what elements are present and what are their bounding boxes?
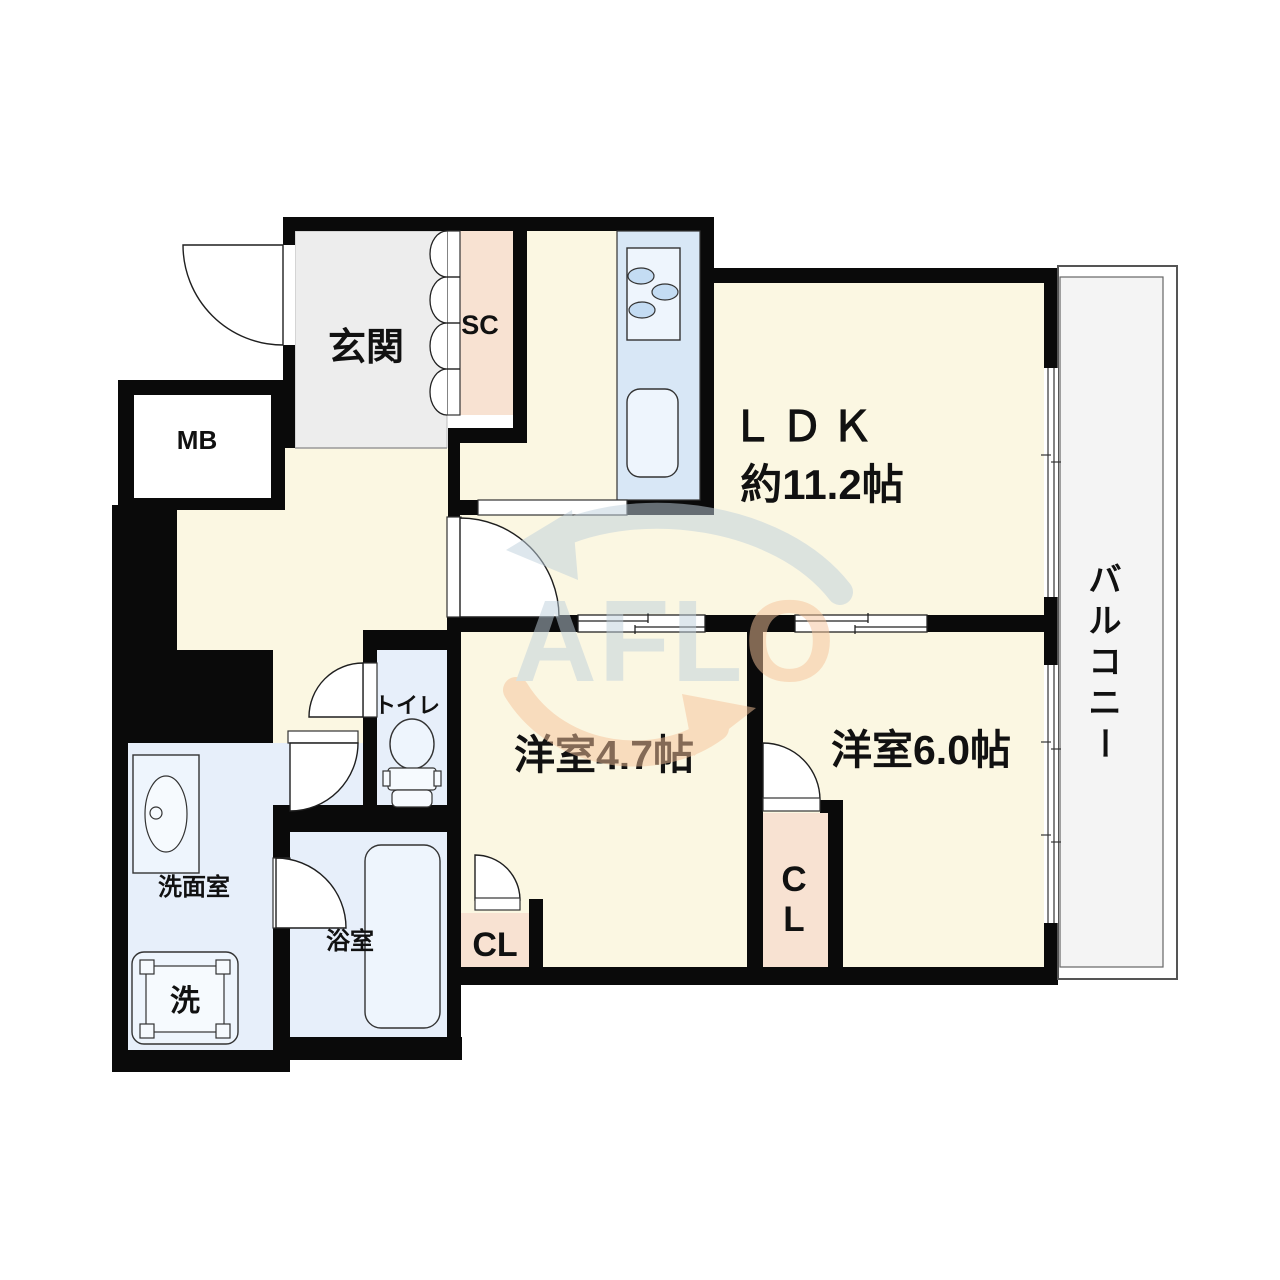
bedroom-60-window: [1041, 665, 1061, 923]
balcony-label: バ ル コ ニ ー: [1086, 561, 1123, 760]
kitchen-sink: [627, 389, 678, 477]
washing-machine-label: 洗: [170, 985, 200, 1018]
genkan-label: 玄関: [328, 327, 404, 369]
watermark-text: AFLO: [513, 576, 837, 706]
ldk-name-label: ＬＤＫ: [731, 403, 881, 450]
svg-text:ー: ー: [1086, 727, 1123, 760]
vanity-faucet: [150, 807, 162, 819]
kitchen-vestibule-floor: [460, 443, 527, 501]
shoe-closet-label: SC: [461, 310, 499, 340]
closet-47-door-leaf: [475, 898, 520, 910]
toilet-label: トイレ: [374, 693, 440, 718]
bathroom-label: 浴室: [326, 927, 374, 955]
floor-plan-canvas: 玄関 SC MB ＬＤＫ 約11.2帖 洋室4.7帖 洋室6.0帖 トイレ 洗面…: [0, 0, 1280, 1280]
floor-plan: 玄関 SC MB ＬＤＫ 約11.2帖 洋室4.7帖 洋室6.0帖 トイレ 洗面…: [0, 0, 1280, 1280]
meter-box-label: MB: [177, 425, 217, 455]
bedroom-60-label: 洋室6.0帖: [831, 727, 1011, 773]
washroom-door-opening: [288, 731, 358, 743]
closet-47-label: CL: [472, 926, 517, 964]
ldk-door-opening: [447, 517, 461, 617]
ldk-window: [1041, 368, 1061, 597]
kitchen-floor: [527, 231, 617, 500]
stove-burner: [629, 302, 655, 318]
svg-text:コ: コ: [1089, 643, 1122, 680]
stove-burner: [628, 268, 654, 284]
entrance-opening: [283, 245, 295, 345]
closet-60-door-leaf: [763, 798, 820, 811]
stove-burner: [652, 284, 678, 300]
bathtub: [365, 845, 440, 1028]
kitchen: [617, 231, 700, 500]
closet-60-label-c: C: [781, 860, 806, 899]
svg-text:ル: ル: [1089, 602, 1122, 639]
washroom-label: 洗面室: [158, 873, 230, 901]
svg-text:ニ: ニ: [1089, 684, 1122, 721]
closet-60-label-l: L: [783, 900, 804, 939]
ldk-size-label: 約11.2帖: [740, 461, 903, 508]
svg-text:バ: バ: [1089, 561, 1122, 598]
